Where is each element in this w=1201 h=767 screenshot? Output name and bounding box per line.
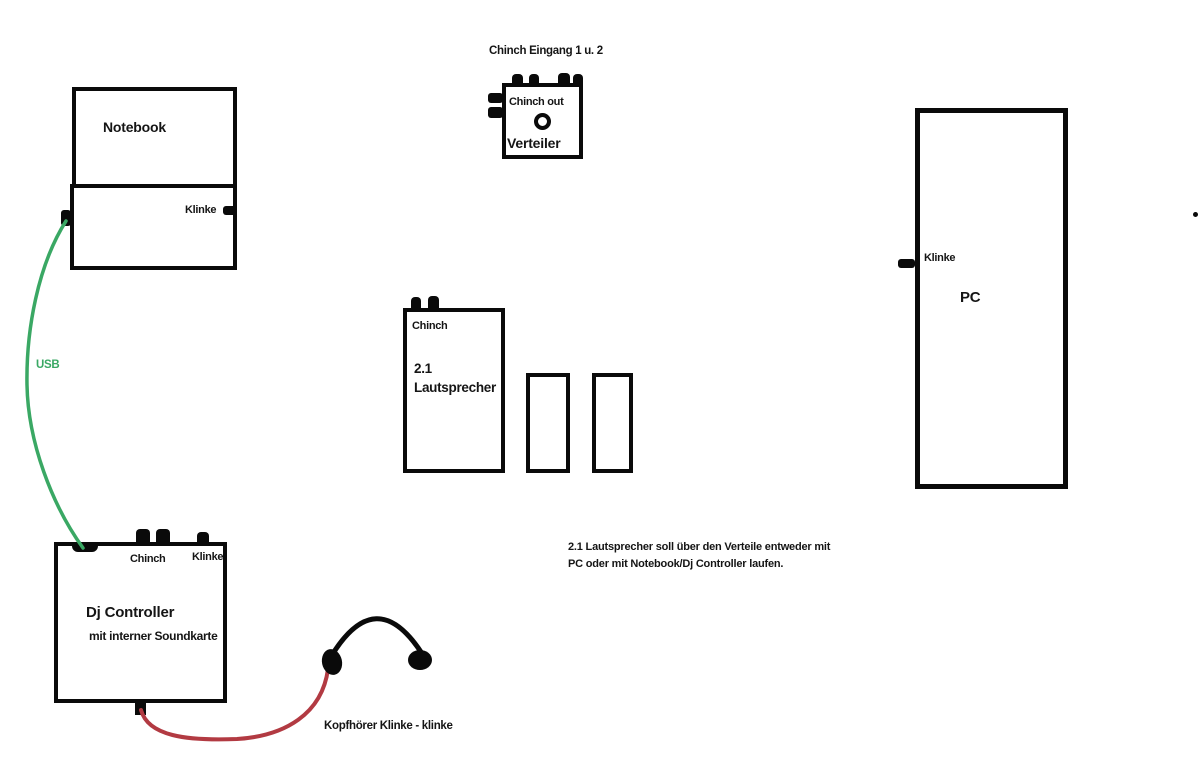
speaker-title-line1: 2.1 xyxy=(414,359,496,378)
notebook-audio-section-box xyxy=(70,184,237,270)
speaker-chinch-right-port-icon xyxy=(428,296,439,309)
dj-klinke-port-icon xyxy=(197,532,209,543)
dj-chinch-label: Chinch xyxy=(130,553,165,566)
paint-canvas: Notebook Klinke Chinch Eingang 1 u. 2 Ch… xyxy=(0,0,1201,767)
note-line2: PC oder mit Notebook/Dj Controller laufe… xyxy=(568,556,830,573)
dj-chinch-left-port-icon xyxy=(136,529,150,543)
headphones-left-earcup-icon xyxy=(320,647,345,677)
notebook-klinke-port-icon xyxy=(223,206,236,215)
pc-klinke-port-icon xyxy=(898,259,915,268)
usb-cable-label: USB xyxy=(36,359,59,372)
usb-cable xyxy=(27,221,83,548)
verteiler-chinch-in2-left-port-icon xyxy=(558,73,570,84)
pc-box xyxy=(915,108,1068,489)
dj-headphone-port-icon xyxy=(135,703,146,715)
verteiler-caption: Chinch Eingang 1 u. 2 xyxy=(489,45,603,58)
headphones-icon xyxy=(320,619,432,677)
stray-dot-icon xyxy=(1193,212,1198,217)
speaker-chinch-left-port-icon xyxy=(411,297,421,309)
speaker-title: 2.1 Lautsprecher xyxy=(414,359,496,397)
note-text: 2.1 Lautsprecher soll über den Verteile … xyxy=(568,539,830,573)
verteiler-chinch-in1-left-port-icon xyxy=(512,74,523,84)
verteiler-chinch-in1-right-port-icon xyxy=(529,74,539,84)
dj-usb-port-icon xyxy=(72,542,98,552)
dj-controller-box xyxy=(54,542,227,703)
dj-chinch-right-port-icon xyxy=(156,529,170,543)
verteiler-chinch-out-top-port-icon xyxy=(488,93,503,103)
verteiler-chinch-in2-right-port-icon xyxy=(573,74,583,84)
dj-klinke-label: Klinke xyxy=(192,551,223,564)
satellite-speaker-left-box xyxy=(526,373,570,473)
dj-controller-label: Dj Controller xyxy=(86,606,174,619)
verteiler-label: Verteiler xyxy=(507,137,560,150)
notebook-usb-port-icon xyxy=(61,210,71,226)
verteiler-chinch-out-bottom-port-icon xyxy=(488,107,503,118)
satellite-speaker-right-box xyxy=(592,373,633,473)
speaker-chinch-label: Chinch xyxy=(412,320,447,333)
headphones-headband-icon xyxy=(332,619,421,655)
dj-controller-sublabel: mit interner Soundkarte xyxy=(89,630,217,643)
notebook-label: Notebook xyxy=(103,121,166,134)
verteiler-knob-icon xyxy=(534,113,551,130)
headphone-cable-label: Kopfhörer Klinke - klinke xyxy=(324,720,453,733)
notebook-klinke-label: Klinke xyxy=(185,204,216,217)
verteiler-chinch-out-label: Chinch out xyxy=(509,96,563,109)
speaker-title-line2: Lautsprecher xyxy=(414,378,496,397)
pc-klinke-label: Klinke xyxy=(924,252,955,265)
note-line1: 2.1 Lautsprecher soll über den Verteile … xyxy=(568,539,830,556)
notebook-box xyxy=(72,87,237,188)
pc-label: PC xyxy=(960,291,980,304)
headphones-right-earcup-icon xyxy=(408,650,432,670)
